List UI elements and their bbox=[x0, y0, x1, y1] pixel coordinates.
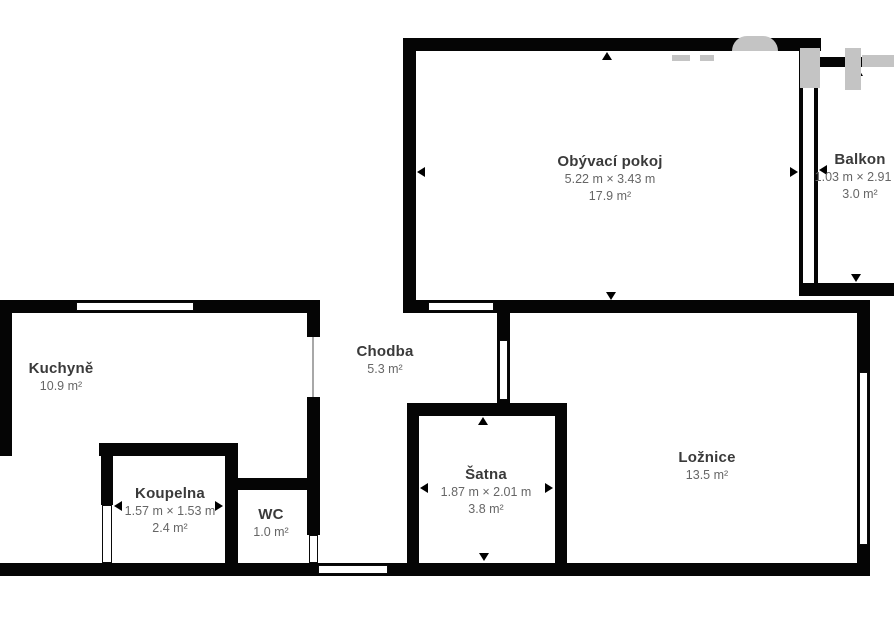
room-name: Chodba bbox=[356, 342, 413, 361]
wall bbox=[225, 478, 320, 490]
wall bbox=[403, 38, 416, 313]
dimension-arrow-right-icon bbox=[215, 501, 223, 511]
window-opening bbox=[102, 505, 112, 563]
room-label-satna: Šatna 1.87 m × 2.01 m 3.8 m² bbox=[441, 465, 532, 518]
room-name: Koupelna bbox=[125, 484, 216, 503]
room-name: Ložnice bbox=[678, 448, 735, 467]
door-opening bbox=[309, 535, 318, 563]
door-opening bbox=[428, 302, 494, 311]
room-name: Šatna bbox=[441, 465, 532, 484]
watermark-logo-icon bbox=[800, 48, 820, 88]
door-opening bbox=[312, 337, 314, 397]
wall bbox=[99, 443, 238, 456]
wall bbox=[225, 443, 238, 576]
dimension-arrow-down-icon bbox=[606, 292, 616, 300]
watermark-logo-icon bbox=[732, 36, 778, 51]
room-area: 13.5 m² bbox=[678, 467, 735, 484]
room-label-koupelna: Koupelna 1.57 m × 1.53 m 2.4 m² bbox=[125, 484, 216, 537]
wall bbox=[0, 563, 870, 576]
wall bbox=[101, 443, 113, 505]
room-name: Balkon bbox=[815, 150, 894, 169]
dimension-arrow-down-icon bbox=[479, 553, 489, 561]
wall bbox=[307, 397, 320, 535]
wall bbox=[407, 403, 567, 416]
room-area: 3.0 m² bbox=[815, 186, 894, 203]
room-label-kuchyne: Kuchyně 10.9 m² bbox=[29, 359, 94, 395]
room-area: 10.9 m² bbox=[29, 378, 94, 395]
dimension-arrow-down-icon bbox=[851, 274, 861, 282]
wall bbox=[407, 403, 419, 576]
room-name: WC bbox=[253, 505, 288, 524]
room-name: Obývací pokoj bbox=[557, 152, 662, 171]
watermark-logo-icon bbox=[672, 55, 690, 61]
room-area: 2.4 m² bbox=[125, 520, 216, 537]
wall bbox=[799, 283, 894, 296]
room-label-wc: WC 1.0 m² bbox=[253, 505, 288, 541]
room-dimensions: 1.87 m × 2.01 m bbox=[441, 484, 532, 501]
dimension-arrow-left-icon bbox=[420, 483, 428, 493]
room-label-balkon: Balkon 1.03 m × 2.91 m 3.0 m² bbox=[815, 150, 894, 203]
room-area: 5.3 m² bbox=[356, 361, 413, 378]
entrance-door-opening bbox=[318, 565, 388, 574]
room-area: 3.8 m² bbox=[441, 501, 532, 518]
room-label-chodba: Chodba 5.3 m² bbox=[356, 342, 413, 378]
room-dimensions: 5.22 m × 3.43 m bbox=[557, 171, 662, 188]
wall bbox=[555, 403, 567, 576]
room-area: 17.9 m² bbox=[557, 188, 662, 205]
room-name: Kuchyně bbox=[29, 359, 94, 378]
room-dimensions: 1.57 m × 1.53 m bbox=[125, 503, 216, 520]
window-opening bbox=[859, 372, 868, 545]
dimension-arrow-right-icon bbox=[545, 483, 553, 493]
door-opening bbox=[499, 340, 508, 400]
room-area: 1.0 m² bbox=[253, 524, 288, 541]
wall bbox=[0, 300, 12, 456]
dimension-arrow-right-icon bbox=[790, 167, 798, 177]
wall bbox=[307, 313, 320, 337]
window-opening bbox=[76, 302, 194, 311]
wall bbox=[510, 300, 870, 313]
room-dimensions: 1.03 m × 2.91 m bbox=[815, 169, 894, 186]
watermark-logo-icon bbox=[862, 55, 894, 67]
room-label-loznice: Ložnice 13.5 m² bbox=[678, 448, 735, 484]
dimension-arrow-left-icon bbox=[114, 501, 122, 511]
watermark-logo-icon bbox=[845, 48, 861, 90]
dimension-arrow-up-icon bbox=[602, 52, 612, 60]
dimension-arrow-left-icon bbox=[417, 167, 425, 177]
room-label-obyvaci-pokoj: Obývací pokoj 5.22 m × 3.43 m 17.9 m² bbox=[557, 152, 662, 205]
dimension-arrow-up-icon bbox=[478, 417, 488, 425]
floor-plan: Obývací pokoj 5.22 m × 3.43 m 17.9 m² Ba… bbox=[0, 0, 894, 625]
watermark-logo-icon bbox=[700, 55, 714, 61]
